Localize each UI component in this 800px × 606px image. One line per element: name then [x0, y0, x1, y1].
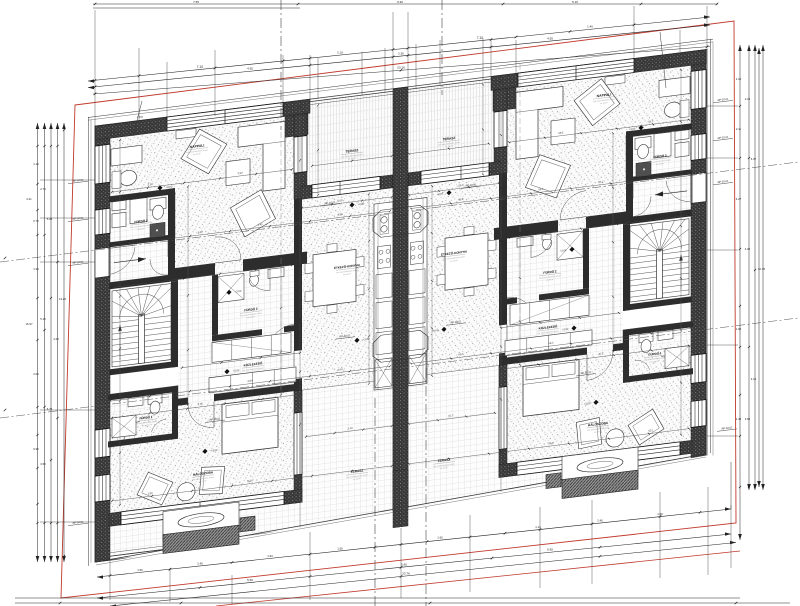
svg-text:7.55: 7.55	[193, 0, 199, 4]
svg-text:3.93: 3.93	[237, 171, 243, 176]
svg-text:1.50: 1.50	[657, 512, 663, 516]
svg-text:4.23: 4.23	[53, 337, 59, 341]
svg-text:5.60: 5.60	[247, 578, 253, 582]
svg-text:1.20: 1.20	[197, 230, 203, 235]
svg-text:2.10: 2.10	[347, 426, 353, 431]
svg-text:2.40: 2.40	[197, 561, 203, 565]
svg-text:13.20: 13.20	[59, 297, 66, 301]
svg-text:1.00: 1.00	[157, 390, 163, 395]
svg-text:2.84: 2.84	[247, 378, 253, 383]
svg-text:1.90: 1.90	[736, 327, 742, 331]
svg-text:4.10: 4.10	[751, 377, 757, 381]
svg-text:1.35: 1.35	[736, 417, 742, 421]
svg-text:1.10: 1.10	[736, 77, 742, 81]
svg-text:7.10: 7.10	[197, 65, 204, 69]
svg-text:2.10: 2.10	[147, 182, 153, 187]
svg-text:2.36: 2.36	[398, 51, 404, 55]
svg-text:23.16: 23.16	[397, 66, 405, 70]
svg-text:5.60: 5.60	[547, 548, 553, 552]
svg-text:3.75: 3.75	[197, 402, 203, 407]
svg-text:2.70: 2.70	[40, 187, 46, 191]
svg-text:2.40: 2.40	[597, 519, 603, 523]
svg-text:5.25: 5.25	[47, 217, 53, 221]
svg-text:0.90: 0.90	[33, 447, 39, 451]
svg-text:1.60: 1.60	[337, 546, 343, 550]
svg-text:1.40: 1.40	[257, 222, 263, 227]
svg-text:3.50: 3.50	[337, 212, 343, 217]
svg-text:4.55: 4.55	[547, 37, 553, 41]
svg-text:2.10: 2.10	[337, 51, 343, 55]
svg-text:23.76: 23.76	[402, 571, 410, 575]
svg-text:5.10: 5.10	[572, 0, 578, 4]
svg-text:1.60: 1.60	[437, 536, 443, 540]
svg-text:2.60: 2.60	[337, 198, 343, 203]
svg-text:1.90: 1.90	[33, 267, 39, 271]
svg-text:3.50: 3.50	[40, 462, 46, 466]
svg-text:4.21: 4.21	[26, 197, 32, 201]
svg-text:9.30: 9.30	[397, 0, 403, 4]
svg-text:2.15: 2.15	[745, 97, 751, 101]
svg-text:5.26: 5.26	[247, 478, 253, 483]
svg-text:6.75: 6.75	[47, 407, 53, 411]
svg-text:1.40: 1.40	[587, 25, 593, 29]
svg-text:6.37: 6.37	[751, 157, 757, 161]
svg-text:2.11: 2.11	[736, 127, 742, 131]
svg-text:1.93: 1.93	[267, 554, 273, 558]
svg-text:3.65: 3.65	[745, 417, 751, 421]
svg-text:10.35: 10.35	[758, 267, 765, 271]
svg-text:1.50: 1.50	[137, 568, 143, 572]
svg-text:4.27: 4.27	[736, 197, 742, 201]
svg-text:4.55: 4.55	[247, 67, 253, 71]
svg-text:5.15: 5.15	[40, 317, 46, 321]
svg-text:2.64: 2.64	[337, 367, 343, 372]
svg-text:0.75: 0.75	[33, 219, 39, 223]
svg-text:4.92: 4.92	[745, 247, 751, 251]
svg-text:16.97: 16.97	[26, 322, 33, 326]
svg-text:1.14: 1.14	[535, 525, 541, 529]
svg-text:1.157: 1.157	[663, 58, 670, 61]
svg-text:2.10: 2.10	[137, 237, 143, 242]
svg-text:1.50: 1.50	[147, 491, 153, 496]
svg-text:7.10: 7.10	[477, 36, 484, 40]
svg-text:1.157: 1.157	[137, 116, 144, 119]
svg-text:1.10: 1.10	[33, 162, 39, 166]
svg-text:5.60: 5.60	[401, 562, 407, 566]
svg-text:2.00: 2.00	[33, 372, 39, 376]
